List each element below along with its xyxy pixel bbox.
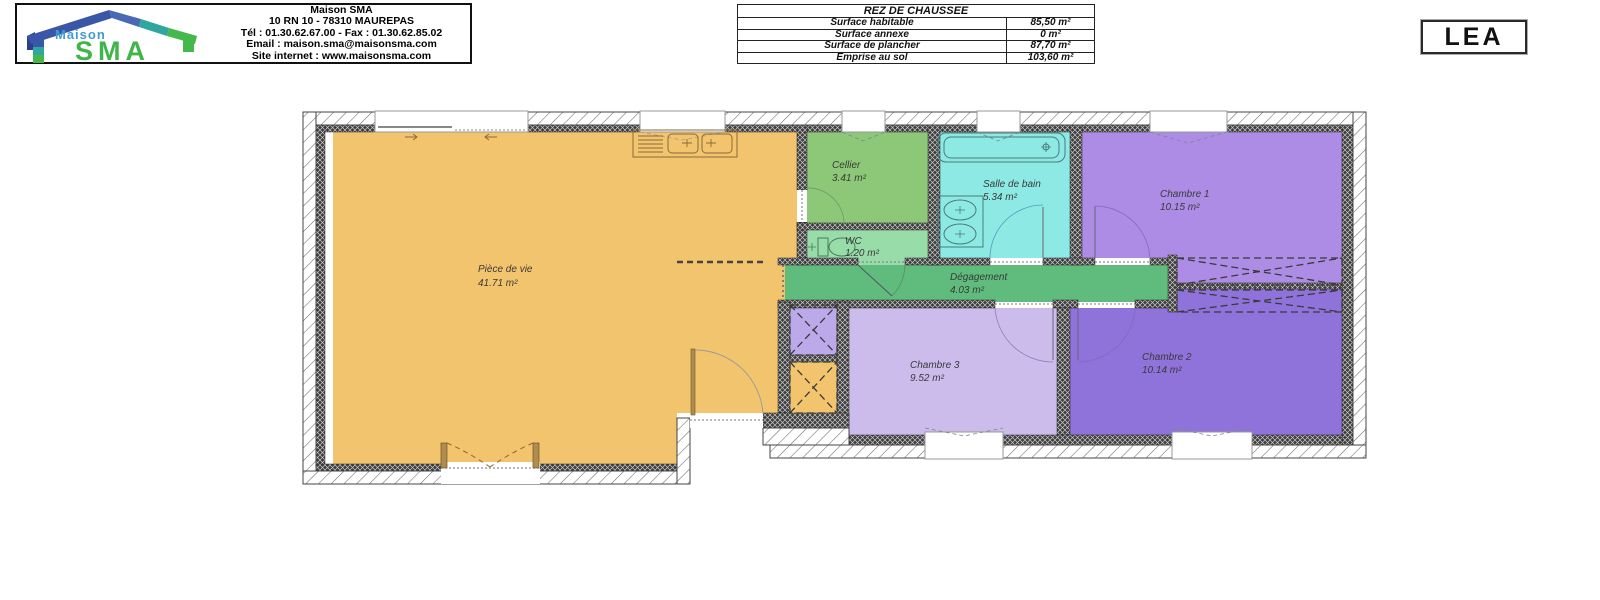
room-label-cellier: Cellier: [832, 160, 861, 171]
room-label-bedroom1: Chambre 1: [1160, 189, 1209, 200]
room-area-hallway: 4.03 m²: [950, 285, 985, 296]
room-bedroom3: [849, 308, 1057, 435]
room-hallway: [785, 265, 1168, 302]
room-bedroom1: [1082, 130, 1342, 258]
room-area-bedroom3: 9.52 m²: [910, 373, 945, 384]
room-label-living: Pièce de vie: [478, 264, 533, 275]
room-area-bathroom: 5.34 m²: [983, 192, 1018, 203]
window-bedroom2: [1172, 428, 1252, 459]
window-bedroom3: [925, 428, 1003, 459]
room-label-bedroom3: Chambre 3: [910, 360, 960, 371]
room-label-wc: WC: [845, 236, 862, 247]
room-bedroom2: [1070, 308, 1342, 435]
room-label-hallway: Dégagement: [950, 272, 1008, 283]
room-area-living: 41.71 m²: [478, 278, 518, 289]
room-label-bathroom: Salle de bain: [983, 179, 1041, 190]
room-area-cellier: 3.41 m²: [832, 173, 867, 184]
floor-plan: Pièce de vie 41.71 m² Cellier 3.41 m² WC…: [0, 0, 1600, 600]
room-area-bedroom2: 10.14 m²: [1142, 365, 1182, 376]
room-label-bedroom2: Chambre 2: [1142, 352, 1192, 363]
room-area-bedroom1: 10.15 m²: [1160, 202, 1200, 213]
page: { "header": { "logo": { "brand_top": "Ma…: [0, 0, 1600, 600]
room-cellier: [807, 130, 928, 225]
room-area-wc: 1.20 m²: [845, 248, 880, 259]
